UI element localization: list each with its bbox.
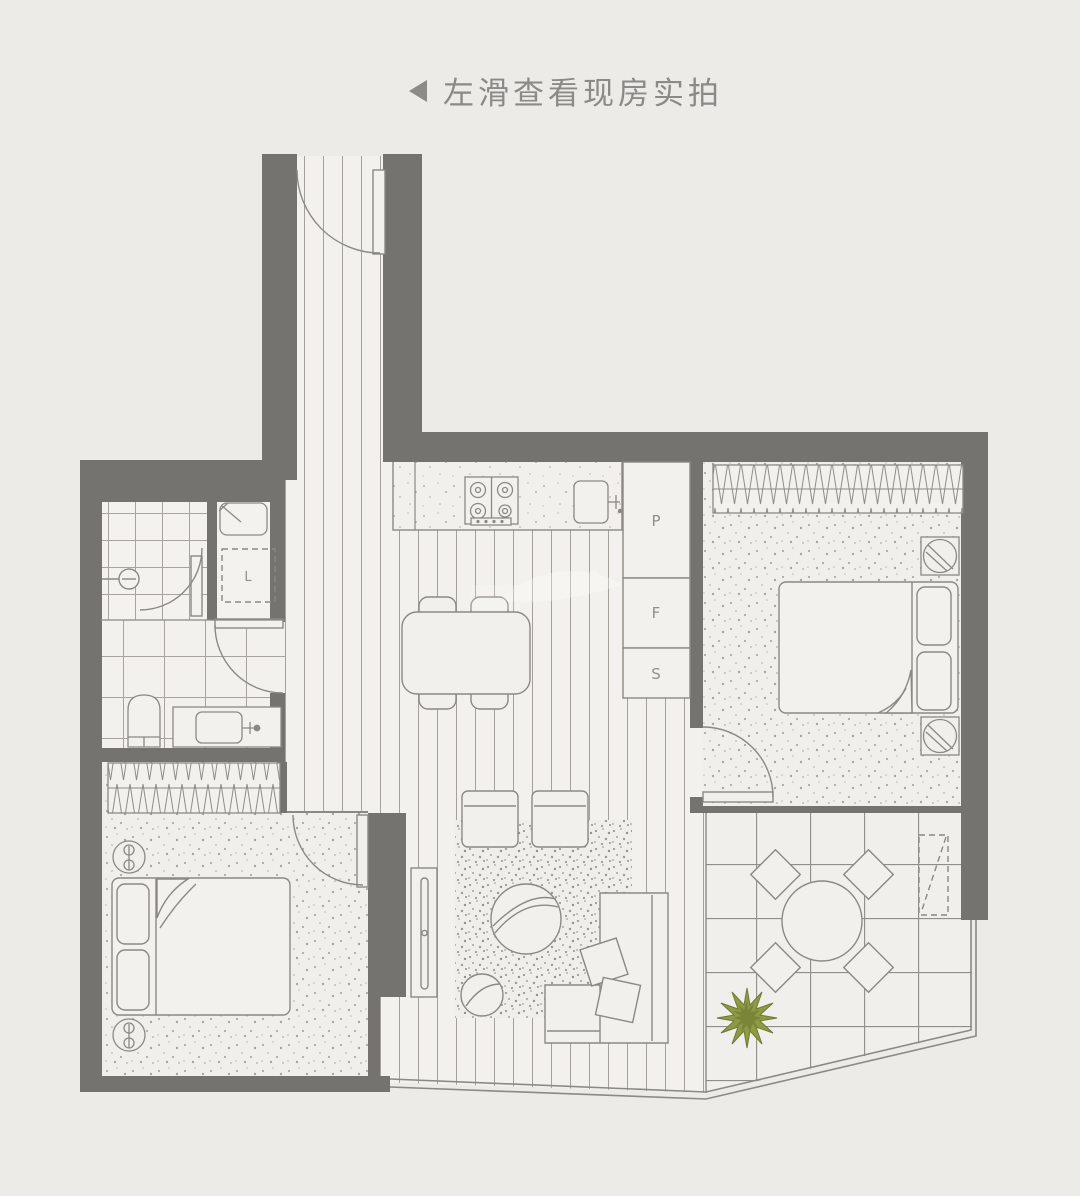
coffee-table-icon (491, 884, 561, 954)
pillow-icon (917, 652, 951, 710)
armchair-icon (462, 791, 518, 847)
wardrobe-icon (108, 763, 280, 813)
cabinet-letter-f: F (652, 604, 661, 622)
outdoor-table-icon (782, 881, 862, 961)
cabinet-letter-p: P (651, 512, 660, 530)
pillow-icon (917, 587, 951, 645)
second-bedroom (108, 763, 290, 1051)
pillow-icon (117, 950, 149, 1010)
bed-icon (779, 582, 958, 713)
nightstand-icon (921, 537, 959, 575)
throw-pillow-icon (595, 977, 640, 1022)
toilet-icon (128, 695, 160, 747)
side-table-icon (461, 974, 503, 1016)
floorplan-carousel-slide[interactable]: 左滑查看现房实拍 (0, 0, 1080, 1196)
stove-icon (465, 477, 518, 525)
cabinet-letter-s: S (651, 665, 661, 683)
floorplan-svg: P F S (0, 0, 1080, 1196)
armchair-icon (532, 791, 588, 847)
vanity-sink-icon (173, 707, 281, 747)
tall-cabinet (623, 462, 690, 698)
pillow-icon (117, 884, 149, 944)
dining-set (402, 597, 530, 709)
dining-table-icon (402, 612, 530, 694)
laundry-sink-icon (219, 503, 267, 535)
tv-console-icon (411, 868, 437, 997)
nightstand-icon (921, 717, 959, 755)
wall-lamp-icon (113, 841, 145, 873)
wardrobe-icon (713, 465, 963, 513)
washer-letter: L (244, 570, 252, 585)
bed-icon (112, 878, 290, 1015)
wall-lamp-icon (113, 1019, 145, 1051)
